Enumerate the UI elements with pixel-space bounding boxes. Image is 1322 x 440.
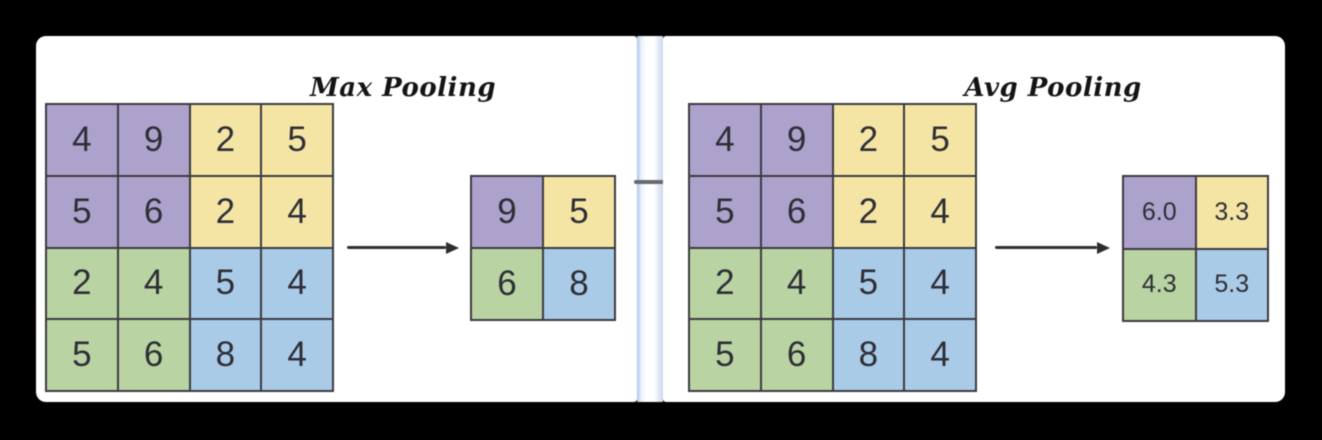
- grid-cell: 6: [762, 320, 832, 390]
- max-pooling-title: Max Pooling: [153, 72, 653, 105]
- grid-cell: 6: [119, 177, 189, 247]
- grid-cell: 5: [834, 249, 904, 319]
- grid-cell: 9: [472, 177, 542, 247]
- grid-cell: 5.3: [1197, 250, 1268, 321]
- arrow-shaft: [995, 246, 1097, 249]
- grid-cell: 2: [47, 249, 117, 319]
- grid-cell: 2: [834, 177, 904, 247]
- grid-cell: 4: [262, 177, 332, 247]
- max-pooling-input-grid: 4925562424545684: [45, 103, 334, 392]
- grid-cell: 4: [905, 320, 975, 390]
- arrow-head: [1097, 242, 1110, 254]
- grid-cell: 5: [690, 320, 760, 390]
- grid-cell: 6: [762, 177, 832, 247]
- grid-cell: 3.3: [1197, 177, 1268, 248]
- grid-cell: 4: [762, 249, 832, 319]
- grid-cell: 6: [119, 320, 189, 390]
- avg-pooling-title: Avg Pooling: [803, 72, 1303, 105]
- pooling-figure: Max Pooling 4925562424545684 9568 Avg Po…: [0, 0, 1322, 440]
- grid-cell: 4: [905, 177, 975, 247]
- grid-cell: 5: [47, 320, 117, 390]
- grid-cell: 4: [262, 320, 332, 390]
- grid-cell: 4: [119, 249, 189, 319]
- grid-cell: 4.3: [1124, 250, 1195, 321]
- grid-cell: 5: [690, 177, 760, 247]
- max-pooling-panel: Max Pooling 4925562424545684 9568: [36, 36, 637, 402]
- grid-cell: 2: [690, 249, 760, 319]
- grid-cell: 2: [834, 105, 904, 175]
- grid-cell: 8: [544, 249, 614, 319]
- grid-cell: 2: [191, 105, 261, 175]
- grid-cell: 6: [472, 249, 542, 319]
- grid-cell: 2: [191, 177, 261, 247]
- grid-cell: 9: [119, 105, 189, 175]
- arrow-head: [446, 242, 459, 254]
- divider-dash: [634, 180, 666, 184]
- grid-cell: 6.0: [1124, 177, 1195, 248]
- grid-cell: 9: [762, 105, 832, 175]
- max-pooling-output-grid: 9568: [470, 175, 616, 321]
- avg-pooling-panel: Avg Pooling 4925562424545684 6.03.34.35.…: [663, 36, 1285, 402]
- grid-cell: 5: [262, 105, 332, 175]
- right-arrow-icon: [995, 241, 1110, 254]
- grid-cell: 4: [262, 249, 332, 319]
- grid-cell: 4: [47, 105, 117, 175]
- grid-cell: 5: [47, 177, 117, 247]
- grid-cell: 4: [905, 249, 975, 319]
- right-arrow-icon: [347, 241, 459, 254]
- grid-cell: 5: [191, 249, 261, 319]
- panel-divider: [637, 36, 663, 402]
- avg-pooling-output-grid: 6.03.34.35.3: [1122, 175, 1269, 322]
- grid-cell: 5: [544, 177, 614, 247]
- arrow-shaft: [347, 246, 446, 249]
- grid-cell: 8: [191, 320, 261, 390]
- grid-cell: 8: [834, 320, 904, 390]
- grid-cell: 5: [905, 105, 975, 175]
- avg-pooling-input-grid: 4925562424545684: [688, 103, 977, 392]
- grid-cell: 4: [690, 105, 760, 175]
